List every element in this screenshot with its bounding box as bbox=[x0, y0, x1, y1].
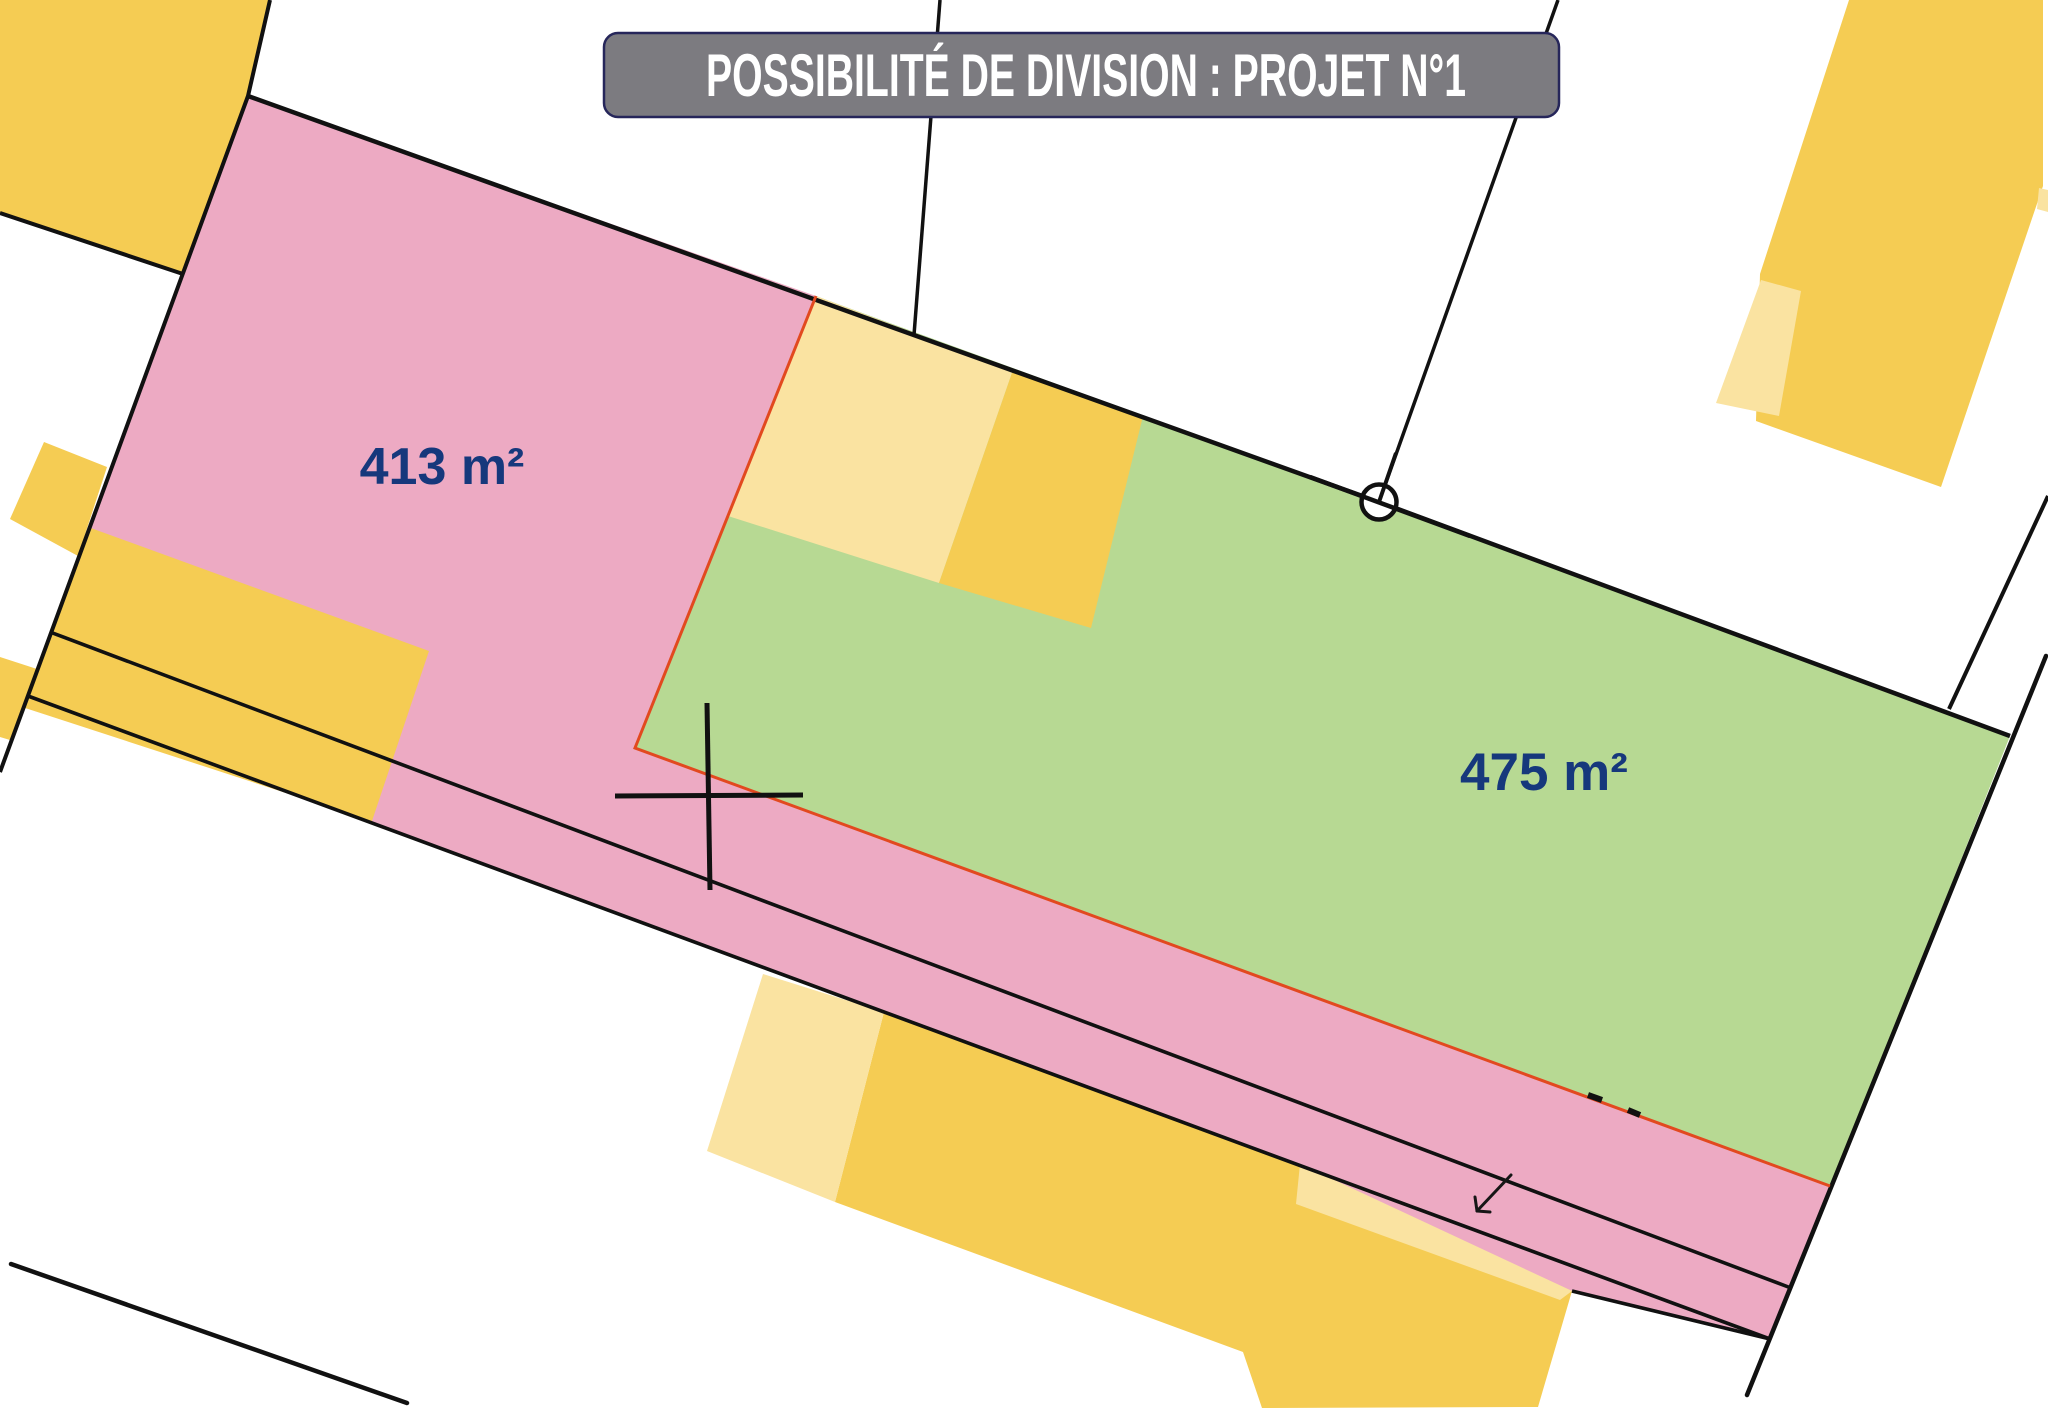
svg-text:475 m²: 475 m² bbox=[1460, 743, 1628, 802]
svg-text:POSSIBILITÉ DE DIVISION : PROJ: POSSIBILITÉ DE DIVISION : PROJET N°1 bbox=[706, 42, 1466, 109]
svg-text:413 m²: 413 m² bbox=[360, 438, 525, 496]
